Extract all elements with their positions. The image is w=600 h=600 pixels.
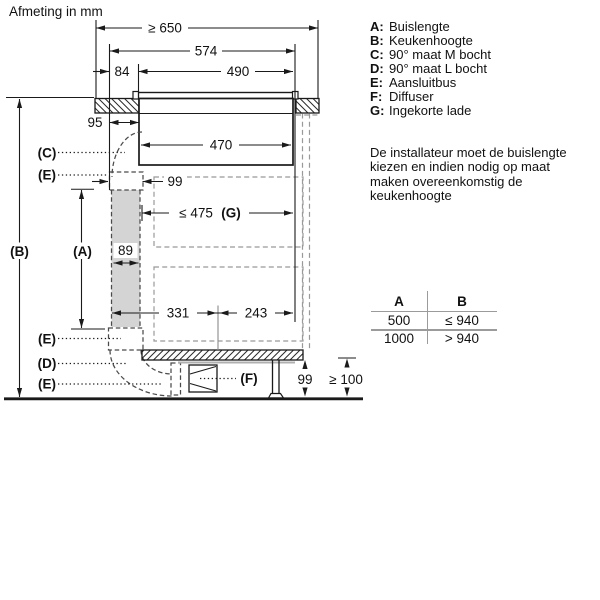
svg-text:574: 574 — [195, 44, 218, 59]
svg-text:(G): (G) — [221, 206, 241, 221]
legend-label: Ingekorte lade — [389, 104, 471, 118]
note-line: maken overeenkomstig de — [370, 175, 598, 189]
table-column-divider — [427, 291, 428, 344]
svg-text:(A): (A) — [73, 244, 92, 259]
dimension-drawing-page: Afmeting in mm — [0, 0, 600, 600]
dim-99-bottom: 99 — [297, 360, 312, 397]
legend-key: D: — [370, 62, 389, 76]
table-row: 1000 > 940 — [371, 331, 497, 347]
label-m-bend: (C) — [38, 146, 57, 161]
legend-item-buislengte: A: Buislengte — [370, 20, 598, 34]
elbow-m-bend — [112, 132, 142, 177]
legend-item-keukenhoogte: B: Keukenhoogte — [370, 34, 598, 48]
svg-text:(B): (B) — [10, 244, 29, 259]
svg-text:99: 99 — [297, 372, 312, 387]
duct-tube — [112, 190, 141, 327]
legend-key: A: — [370, 20, 389, 34]
svg-text:84: 84 — [114, 64, 130, 79]
rear-duct-channel — [296, 114, 319, 351]
legend-label: 90° maat M bocht — [389, 48, 491, 62]
dim-574: 574 — [110, 44, 295, 59]
label-connector-bottom: (E) — [38, 332, 56, 347]
legend-label: 90° maat L bocht — [389, 62, 487, 76]
svg-text:470: 470 — [210, 138, 233, 153]
table-row: 500 ≤ 940 — [371, 312, 497, 329]
installer-note: De installateur moet de buislengte kieze… — [370, 146, 598, 203]
legend-key: E: — [370, 76, 389, 90]
legend-label: Diffuser — [389, 90, 434, 104]
dim-plinth-min: ≥ 100 — [329, 358, 363, 397]
legend: A: Buislengte B: Keukenhoogte C: 90° maa… — [370, 20, 598, 118]
legend-item-m-bocht: C: 90° maat M bocht — [370, 48, 598, 62]
legend-label: Keukenhoogte — [389, 34, 473, 48]
dim-worktop-min: ≥ 650 — [96, 21, 318, 36]
legend-key: G: — [370, 104, 389, 118]
svg-text:95: 95 — [87, 115, 102, 130]
connector-diffuser — [171, 363, 181, 395]
legend-item-aansluitbus: E: Aansluitbus — [370, 76, 598, 90]
legend-item-ingekorte-lade: G: Ingekorte lade — [370, 104, 598, 118]
hob-body — [139, 99, 293, 166]
legend-label: Aansluitbus — [389, 76, 456, 90]
label-connector-top: (E) — [38, 168, 56, 183]
dim-84: 84 — [93, 64, 130, 79]
cabinet-outline — [154, 267, 303, 341]
legend-key: B: — [370, 34, 389, 48]
dim-buislengte: (A) — [68, 190, 96, 328]
note-line: keukenhoogte — [370, 189, 598, 203]
table-header-b: B — [427, 294, 497, 309]
legend-key: F: — [370, 90, 389, 104]
table-cell: ≤ 940 — [427, 313, 497, 328]
svg-text:99: 99 — [167, 174, 182, 189]
cabinet-leg — [269, 360, 284, 398]
tube-length-table: A B 500 ≤ 940 1000 > 940 — [371, 291, 497, 347]
legend-key: C: — [370, 48, 389, 62]
dim-95: 95 — [87, 115, 139, 130]
dim-keukenhoogte: (B) — [6, 99, 33, 397]
table-cell: 1000 — [371, 331, 427, 346]
page-title: Afmeting in mm — [9, 4, 103, 19]
table-header-row: A B — [371, 291, 497, 311]
connector-top — [110, 172, 144, 190]
label-l-bend: (D) — [38, 356, 57, 371]
table-cell: 500 — [371, 313, 427, 328]
legend-item-diffuser: F: Diffuser — [370, 90, 598, 104]
svg-text:≥ 650: ≥ 650 — [148, 21, 182, 36]
label-connector-diffuser: (E) — [38, 377, 56, 392]
svg-text:≤ 475: ≤ 475 — [179, 206, 213, 221]
table-header-a: A — [371, 294, 427, 309]
legend-item-l-bocht: D: 90° maat L bocht — [370, 62, 598, 76]
svg-text:89: 89 — [118, 243, 133, 258]
legend-label: Buislengte — [389, 20, 450, 34]
component-leaders — [58, 153, 236, 385]
label-diffuser: (F) — [240, 371, 257, 386]
dim-99-top: 99 — [92, 174, 187, 190]
note-line: kiezen en indien nodig op maat — [370, 160, 598, 174]
dim-490: 490 — [139, 64, 294, 79]
table-cell: > 940 — [427, 331, 497, 346]
svg-text:243: 243 — [245, 306, 268, 321]
svg-text:≥ 100: ≥ 100 — [329, 372, 363, 387]
note-line: De installateur moet de buislengte — [370, 146, 598, 160]
svg-text:331: 331 — [167, 306, 190, 321]
dim-drawer-max: ≤ 475 (G) — [142, 205, 293, 221]
svg-text:490: 490 — [227, 64, 250, 79]
